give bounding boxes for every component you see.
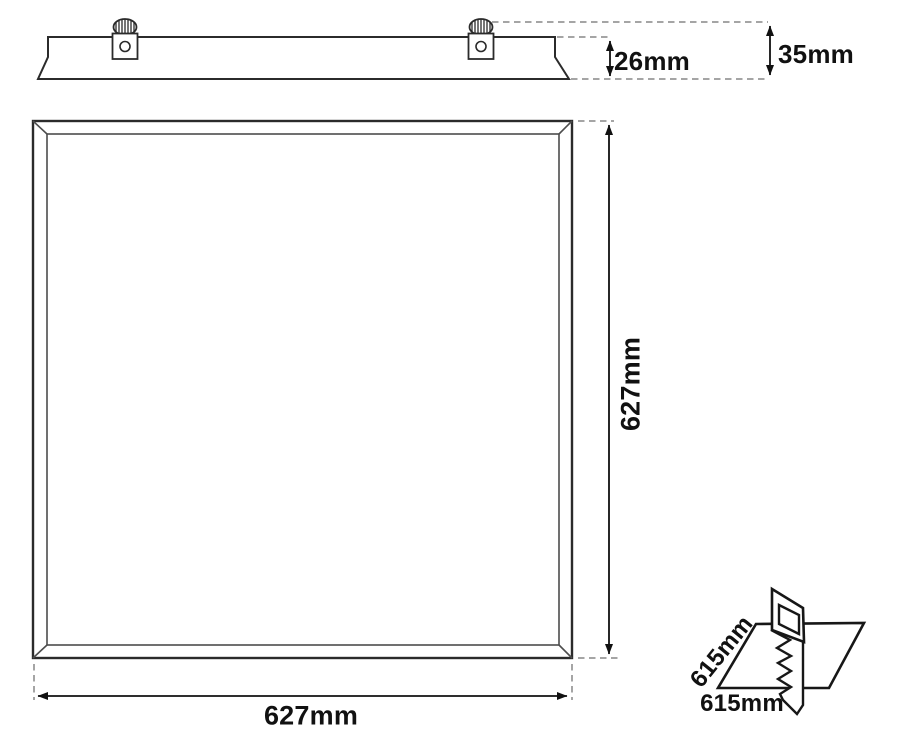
cutout-bottom-label: 615mm [700, 692, 784, 716]
panel-width-label: 627mm [264, 703, 358, 730]
overall-depth-label: 35mm [778, 41, 854, 67]
front-view-drawing [33, 121, 618, 700]
panel-height-label: 627mm [618, 337, 645, 431]
panel-outer-frame [33, 121, 572, 658]
panel-dimension-drawing: 26mm 35mm 627mm 627mm 615mm 615mm [0, 0, 900, 745]
technical-drawing-canvas [0, 0, 900, 745]
mounting-clip-right-icon [469, 19, 494, 59]
mounting-clip-left-icon [113, 19, 138, 59]
recess-depth-label: 26mm [614, 48, 690, 74]
